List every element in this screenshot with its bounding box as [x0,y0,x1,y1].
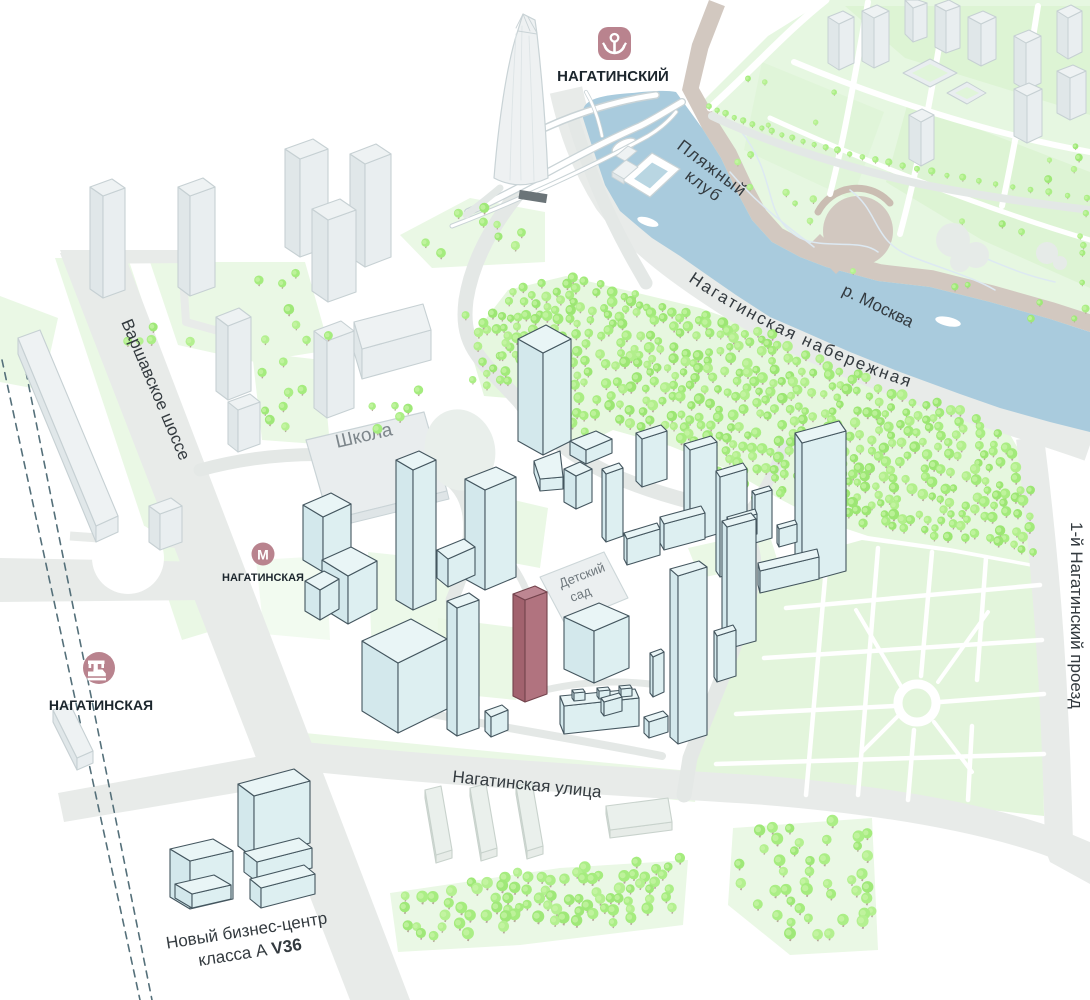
svg-text:НАГАТИНСКИЙ: НАГАТИНСКИЙ [557,67,669,85]
svg-text:НАГАТИНСКАЯ: НАГАТИНСКАЯ [222,572,304,584]
svg-text:НАГАТИНСКАЯ: НАГАТИНСКАЯ [49,697,153,713]
svg-text:M: M [257,547,269,563]
svg-text:1-й Нагатинский проезд: 1-й Нагатинский проезд [1067,522,1086,709]
